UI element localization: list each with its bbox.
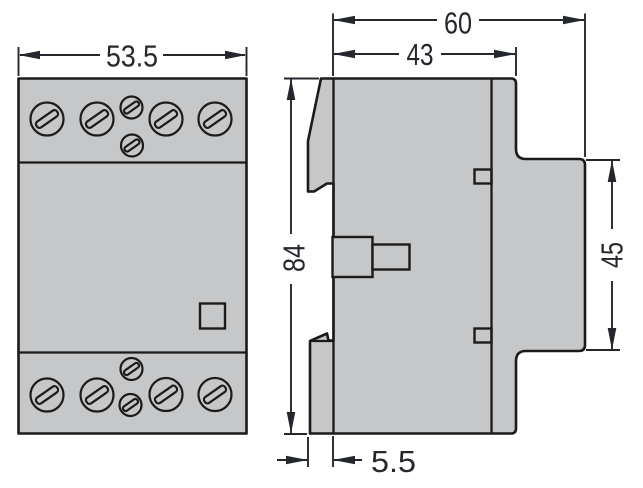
side-view: 60 43 84 45 [277, 6, 630, 480]
arrowhead-icon [608, 160, 617, 182]
arrowhead-icon [287, 412, 296, 434]
arrowhead-icon [333, 456, 355, 465]
dim-label-height: 84 [277, 244, 312, 272]
arrowhead-icon [563, 16, 585, 25]
dim-label-upper-body-depth: 43 [407, 37, 434, 72]
arrowhead-icon [608, 328, 617, 350]
arrowhead-icon [333, 50, 355, 59]
arrowhead-icon [286, 456, 308, 465]
arrowhead-icon [494, 50, 516, 59]
dim-label-rail-face-height: 45 [595, 242, 630, 268]
protrusion-block [333, 237, 373, 277]
arrowhead-icon [333, 16, 355, 25]
arrowhead-icon [287, 79, 296, 101]
dim-label-clip-offset: 5.5 [371, 444, 416, 479]
dim-label-overall-depth: 60 [444, 6, 472, 41]
front-view: 53.5 [19, 39, 247, 434]
protrusion-tip [373, 245, 410, 270]
arrowhead-icon [225, 51, 247, 60]
dim-label-front-width: 53.5 [106, 39, 158, 74]
dimension-drawing-canvas: 53.5 60 [0, 0, 643, 488]
dimension-drawing-page: 53.5 60 [0, 0, 643, 488]
arrowhead-icon [19, 51, 41, 60]
dim-upper-body-depth: 43 [333, 37, 516, 76]
dim-front-width: 53.5 [19, 39, 247, 77]
dim-clip-offset: 5.5 [277, 436, 416, 479]
dim-rail-face-height: 45 [586, 160, 630, 350]
